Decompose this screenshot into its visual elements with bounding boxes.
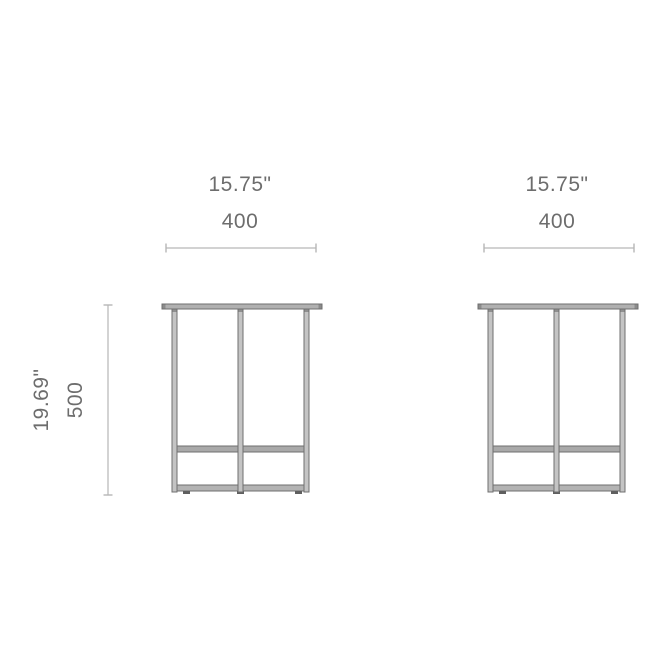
right-width-label-inches: 15.75" bbox=[481, 174, 633, 196]
left-height-label-mm: 500 bbox=[65, 382, 87, 419]
left-width-label-inches: 15.75" bbox=[165, 174, 315, 196]
right-table-frame-drawing bbox=[474, 298, 644, 498]
left-height-label-inches: 19.69" bbox=[31, 368, 53, 431]
left-horizontal-dimension-line bbox=[164, 242, 318, 254]
right-horizontal-dimension-line bbox=[482, 242, 636, 254]
left-vertical-dimension-line bbox=[100, 300, 116, 500]
left-width-label-mm: 400 bbox=[165, 211, 315, 233]
dimension-drawing-canvas: 15.75" 400 19.69" 500 15.75" 400 bbox=[0, 0, 672, 672]
left-table-frame-drawing bbox=[158, 298, 328, 498]
right-width-label-mm: 400 bbox=[481, 211, 633, 233]
